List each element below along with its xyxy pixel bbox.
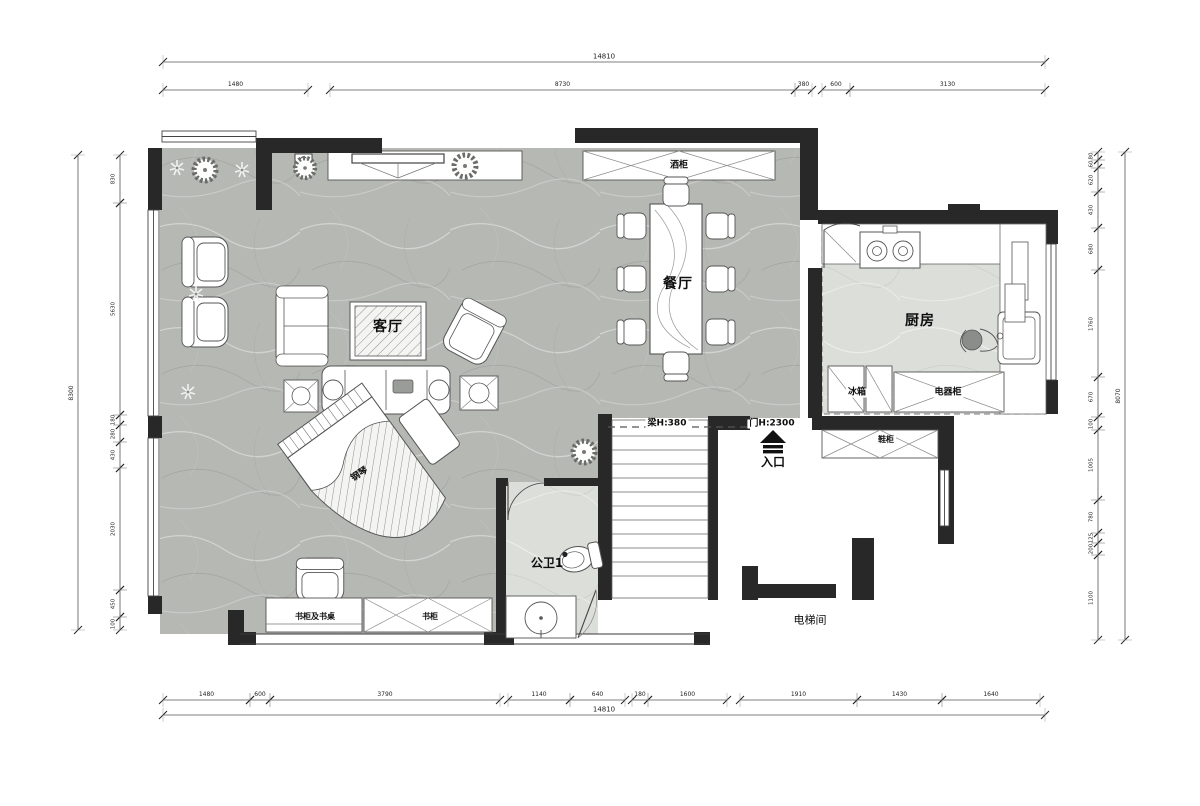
room-label-kitchen: 厨房	[905, 314, 935, 328]
dimension-value: 180	[111, 415, 117, 426]
annotation-beam-height: 梁H:380	[646, 420, 689, 429]
floor-plan-drawing	[0, 0, 1200, 806]
floor-plan-canvas: 客厅 餐厅 厨房 公卫1 入口 电梯间 钢琴 酒柜 冰箱 电器柜 鞋柜 书柜及书…	[0, 0, 1200, 806]
dimension-value: 60	[1089, 161, 1095, 168]
dimension-value: 125	[1089, 533, 1095, 544]
plant-icon	[194, 159, 216, 181]
plant-icon	[295, 158, 315, 178]
dimension-value: 450	[111, 598, 117, 609]
end-table-left	[284, 380, 318, 412]
desk-chair	[296, 558, 344, 602]
armchair-left-1	[182, 237, 228, 287]
dining-chair	[706, 319, 735, 345]
dimension-value: 200	[1089, 544, 1095, 555]
dining-chair	[706, 213, 735, 239]
furniture-label-shoe-cabinet: 鞋柜	[876, 436, 896, 444]
dimension-value: 14810	[593, 54, 615, 61]
dining-chair	[663, 177, 689, 206]
dimension-value: 80	[1089, 153, 1095, 160]
dimension-value: 430	[111, 450, 117, 461]
dining-chair	[706, 266, 735, 292]
bottom-wall	[240, 634, 710, 644]
dimension-value: 100	[1089, 418, 1095, 429]
furniture-label-appliance-cabinet: 电器柜	[932, 389, 963, 398]
tv-console	[328, 151, 522, 180]
loveseat	[276, 286, 328, 366]
annotation-door-height: 门H:2300	[747, 420, 796, 429]
room-label-dining: 餐厅	[663, 277, 693, 291]
dimension-value: 8300	[69, 385, 75, 400]
furniture-label-fridge: 冰箱	[846, 389, 868, 398]
dimension-value: 3790	[377, 692, 392, 698]
dimension-value: 380	[798, 82, 809, 88]
furniture-label-bookcase-desk: 书柜及书桌	[293, 613, 337, 621]
dimension-value: 1140	[531, 692, 546, 698]
dimension-value: 180	[634, 692, 645, 698]
dimension-value: 280	[111, 428, 117, 439]
dimension-value: 620	[1089, 175, 1095, 186]
plant-icon	[454, 155, 476, 177]
dimension-value: 1640	[983, 692, 998, 698]
dimension-value: 1600	[680, 692, 695, 698]
dimension-value: 1910	[791, 692, 806, 698]
dining-chair	[663, 352, 689, 381]
dimension-value: 100	[111, 618, 117, 629]
dimension-value: 600	[830, 82, 841, 88]
end-table-right	[460, 376, 498, 410]
armchair-left-2	[182, 297, 228, 347]
dimension-value: 14810	[593, 707, 615, 714]
plant-icon	[573, 441, 595, 463]
dimension-value: 1430	[892, 692, 907, 698]
dimension-value: 830	[111, 174, 117, 185]
dimension-value: 2030	[111, 522, 117, 536]
dimension-value: 680	[1089, 244, 1095, 255]
stairs	[612, 420, 708, 598]
dimension-value: 1480	[199, 692, 214, 698]
room-label-living: 客厅	[373, 320, 403, 334]
dimension-value: 1100	[1089, 591, 1095, 605]
dimension-value: 670	[1089, 392, 1095, 403]
furniture-label-bookcase: 书柜	[420, 613, 440, 621]
entrance-arrow-icon	[760, 430, 786, 453]
dining-chair	[617, 266, 646, 292]
dimension-value: 1005	[1089, 458, 1095, 472]
room-label-entry: 入口	[761, 456, 785, 468]
stove	[860, 226, 920, 268]
dimension-value: 1760	[1089, 317, 1095, 331]
dimension-value: 640	[592, 692, 603, 698]
bath-sink	[506, 596, 576, 638]
dining-chair	[617, 319, 646, 345]
room-label-elevator: 电梯间	[794, 615, 827, 626]
dimension-value: 780	[1089, 511, 1095, 522]
dimension-value: 600	[254, 692, 265, 698]
dimension-value: 1480	[228, 82, 243, 88]
dimension-value: 430	[1089, 205, 1095, 216]
dimension-value: 8070	[1116, 388, 1122, 403]
furniture-label-wine-cabinet: 酒柜	[668, 162, 690, 171]
room-label-bath: 公卫1	[531, 557, 563, 569]
dining-chair	[617, 213, 646, 239]
dimension-value: 8730	[555, 82, 570, 88]
dimension-value: 3130	[940, 82, 955, 88]
dimension-value: 5630	[111, 302, 117, 316]
